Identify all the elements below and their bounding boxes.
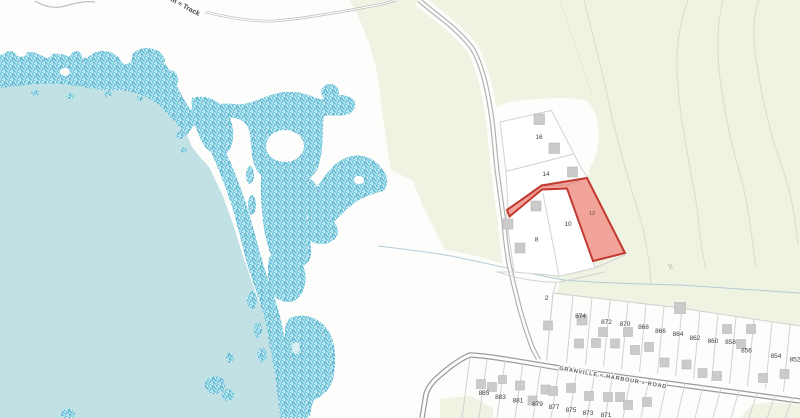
svg-text:864: 864 (673, 331, 684, 338)
svg-text:862: 862 (690, 335, 701, 342)
svg-text:12: 12 (589, 211, 595, 217)
svg-text:873: 873 (583, 410, 594, 417)
svg-text:8: 8 (535, 237, 539, 244)
svg-text:14: 14 (542, 171, 550, 178)
svg-text:874: 874 (575, 313, 586, 320)
svg-text:881: 881 (513, 398, 524, 405)
svg-text:868: 868 (638, 324, 649, 331)
svg-text:866: 866 (655, 328, 666, 335)
svg-text:858: 858 (725, 339, 736, 346)
svg-text:860: 860 (708, 338, 719, 345)
svg-text:16: 16 (535, 134, 543, 141)
svg-text:883: 883 (495, 394, 506, 401)
svg-text:885: 885 (479, 390, 490, 397)
svg-text:872: 872 (601, 319, 612, 326)
svg-text:870: 870 (620, 321, 631, 328)
svg-text:871: 871 (601, 412, 612, 418)
svg-text:852: 852 (790, 357, 800, 364)
svg-text:854: 854 (771, 353, 782, 360)
svg-text:2: 2 (545, 295, 549, 302)
svg-text:877: 877 (549, 404, 560, 411)
svg-text:856: 856 (741, 348, 752, 355)
svg-text:875: 875 (566, 407, 577, 414)
svg-text:879: 879 (532, 401, 543, 408)
svg-text:10: 10 (564, 221, 572, 228)
